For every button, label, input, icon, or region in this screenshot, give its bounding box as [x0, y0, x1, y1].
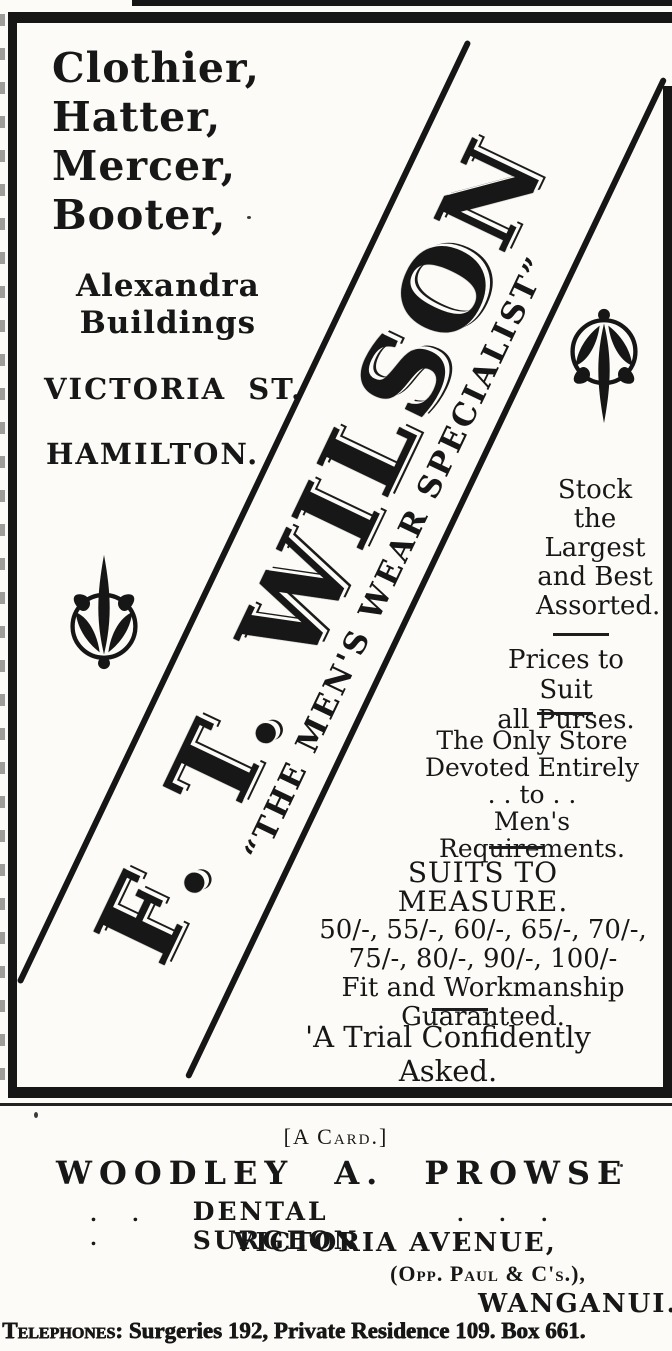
phones-label: Telephones: — [2, 1318, 123, 1343]
floral-ornament-icon — [564, 304, 644, 434]
top-edge-strip — [132, 0, 672, 6]
stock-line: and Best — [536, 563, 654, 592]
stock-line: the — [536, 505, 654, 534]
stock-claim: Stock the Largest and Best Assorted. — [536, 476, 654, 621]
prices-line: Prices to Suit — [478, 645, 654, 705]
exclusive-line: Devoted Entirely — [408, 754, 656, 781]
suits-price-line: 75/-, 80/-, 90/-, 100/- — [318, 945, 648, 974]
building-line: Alexandra — [76, 268, 260, 305]
newspaper-ad-scan: Clothier, Hatter, Mercer, Booter, Alexan… — [0, 0, 672, 1351]
stock-line: Assorted. — [536, 592, 654, 621]
section-divider — [553, 633, 609, 636]
stock-line: Largest — [536, 534, 654, 563]
ad-border-right — [663, 86, 672, 1098]
exclusive-claim: The Only Store Devoted Entirely . . to .… — [408, 727, 656, 862]
suits-guarantee-line: Fit and Workmanship — [318, 974, 648, 1003]
suits-offer: SUITS TO MEASURE. 50/-, 55/-, 60/-, 65/-… — [318, 858, 648, 1032]
trade-item: Booter, — [52, 191, 260, 240]
trade-item: Clothier, — [52, 44, 260, 93]
exclusive-line: The Only Store — [408, 727, 656, 754]
exclusive-line: . . to . . — [408, 781, 656, 808]
floral-ornament-icon — [64, 544, 144, 674]
suits-price-line: 50/-, 55/-, 60/-, 65/-, 70/-, — [318, 916, 648, 945]
card-phones: Telephones: Surgeries 192, Private Resid… — [2, 1318, 672, 1344]
separator-rule — [0, 1103, 672, 1106]
trade-item: Hatter, — [52, 93, 260, 142]
section-divider — [489, 846, 545, 849]
phones-detail: Surgeries 192, Private Residence 109. Bo… — [123, 1318, 585, 1343]
building-name: Alexandra Buildings — [76, 268, 260, 342]
dentist-name: WOODLEY A. PROWSE — [56, 1154, 596, 1192]
suits-heading: SUITS TO MEASURE. — [318, 858, 648, 916]
section-divider — [537, 712, 593, 715]
prices-claim: Prices to Suit all Purses. — [478, 645, 654, 735]
card-town: WANGANUI. — [478, 1289, 648, 1319]
decorative-dots: . . . — [90, 1202, 171, 1250]
exclusive-line: Men's Requirements. — [408, 808, 656, 862]
stock-line: Stock — [536, 476, 654, 505]
section-divider — [432, 1008, 488, 1011]
trade-list: Clothier, Hatter, Mercer, Booter, — [52, 44, 260, 240]
card-tag: [A Card.] — [0, 1124, 672, 1150]
ink-speck — [34, 1112, 38, 1118]
trial-invitation: 'A Trial Confidently Asked. — [258, 1020, 638, 1088]
scan-edge-speckle — [0, 14, 5, 1096]
card-landmark: (Opp. Paul & C's.), — [360, 1261, 616, 1287]
street-name: VICTORIA ST. — [44, 372, 303, 406]
city-name: HAMILTON. — [46, 437, 259, 471]
trade-item: Mercer, — [52, 142, 260, 191]
building-line: Buildings — [76, 305, 260, 342]
card-address: VICTORIA AVENUE, — [230, 1228, 560, 1258]
